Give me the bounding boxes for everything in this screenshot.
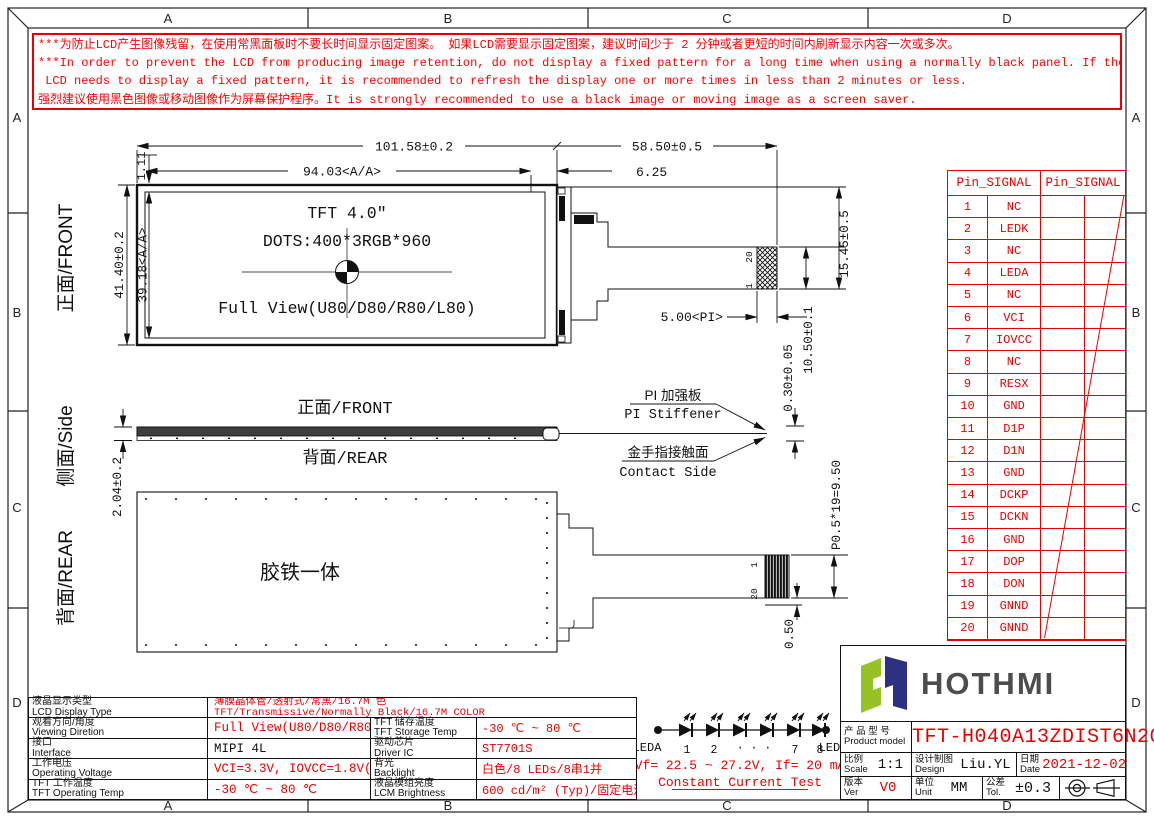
pin-signal: GNND xyxy=(988,596,1041,617)
dim-pitch: P0.5*19=9.50 xyxy=(830,460,844,550)
spec-value-line: TFT/Transmissive/Normally Black/16.7M CO… xyxy=(214,708,630,718)
date-label-en: Date xyxy=(1020,765,1040,775)
leda-terminal xyxy=(654,726,662,734)
gold-finger-hatch xyxy=(757,247,777,289)
brand-name: HOTHMI xyxy=(921,666,1055,702)
spec-label-en: TFT Operating Temp xyxy=(32,789,204,799)
spec-label: 观看方向/角度 Viewing Diretion xyxy=(29,718,208,737)
empty-cell xyxy=(1041,485,1085,506)
dim-stiffener-width: 5.00<PI> xyxy=(661,310,724,325)
empty-cell xyxy=(1085,596,1125,617)
front-section-label: 正面/FRONT xyxy=(56,203,77,312)
pin-number: 14 xyxy=(948,485,988,506)
product-model-label: 产 品 型 号 Product model xyxy=(841,722,912,752)
empty-cell xyxy=(1041,573,1085,594)
scale-design-date-row: 比例Scale 1:1 设计制图Design Liu.YL 日期Date 202… xyxy=(841,752,1125,776)
grid-letter: D xyxy=(1002,798,1011,813)
empty-cell xyxy=(1041,285,1085,306)
led-test-text: Constant Current Test xyxy=(658,775,822,790)
title-block: HOTHMI 产 品 型 号 Product model TFT-H040A13… xyxy=(840,645,1126,800)
image-retention-warning: ***为防止LCD产生图像残留，在使用常黑面板时不要长时间显示固定图案。 如果L… xyxy=(32,33,1122,110)
pin-signal: IOVCC xyxy=(988,329,1041,350)
pin-number: 6 xyxy=(948,307,988,328)
pin-number: 8 xyxy=(948,351,988,372)
pin-signal: GNND xyxy=(988,618,1041,639)
empty-cell xyxy=(1085,440,1125,461)
fpc-tail-rear xyxy=(557,514,802,641)
pin-row: 10GND xyxy=(948,396,1125,418)
empty-cell xyxy=(1085,551,1125,572)
empty-cell xyxy=(1085,218,1125,239)
empty-cell xyxy=(1085,329,1125,350)
pin-number: 3 xyxy=(948,240,988,261)
pin-signal: D1N xyxy=(988,440,1041,461)
pin-signal: NC xyxy=(988,196,1041,217)
view-section-labels: 正面/FRONT 侧面/Side 背面/REAR xyxy=(55,203,77,626)
empty-cell xyxy=(1041,374,1085,395)
date-cell: 日期Date 2021-12-02 xyxy=(1017,753,1125,776)
empty-cell xyxy=(1041,462,1085,483)
grid-letter: A xyxy=(164,798,173,813)
empty-cell xyxy=(1041,529,1085,550)
pin-row: 5NC xyxy=(948,285,1125,307)
design-cell: 设计制图Design Liu.YL xyxy=(912,753,1017,776)
spec-value: MIPI 4L xyxy=(208,739,371,758)
empty-cell xyxy=(1085,196,1125,217)
led-number: · · · xyxy=(737,742,772,755)
pin-signal: NC xyxy=(988,285,1041,306)
grid-letter: D xyxy=(12,695,21,710)
spec-row: TFT 工作温度 TFT Operating Temp -30 ℃ ~ 80 ℃… xyxy=(29,780,636,799)
empty-cell xyxy=(1041,440,1085,461)
dim-width: 101.58±0.2 xyxy=(375,140,453,155)
led-symbols xyxy=(679,713,829,737)
spec-label: 接口 Interface xyxy=(29,739,208,758)
led-anode-label: LEDA xyxy=(633,741,663,755)
first-angle-projection-icon xyxy=(1064,777,1122,799)
grid-letter: A xyxy=(164,11,173,26)
center-target-icon xyxy=(336,261,359,284)
pin-signal: GND xyxy=(988,529,1041,550)
rear-gold-fingers xyxy=(765,555,789,598)
design-value: Liu.YL xyxy=(955,757,1016,773)
pin-table-header: Pin_SIGNAL Pin_SIGNAL xyxy=(948,171,1125,196)
projection-symbol-cell xyxy=(1060,777,1125,799)
empty-cell xyxy=(1041,551,1085,572)
dim-aa-width: 94.03<A/A> xyxy=(303,165,381,180)
side-profile-bar xyxy=(137,427,557,436)
spec-label: 背光 Backlight xyxy=(371,759,477,778)
pin-signal: NC xyxy=(988,351,1041,372)
unit-label-en: Unit xyxy=(915,788,934,798)
grid-letter: B xyxy=(1132,305,1141,320)
tolerance-cell: 公差Tol. ±0.3 xyxy=(983,777,1060,799)
empty-cell xyxy=(1041,618,1085,639)
rear-section-label: 背面/REAR xyxy=(55,530,77,626)
spec-value: VCI=3.3V, IOVCC=1.8V(Typ) xyxy=(208,759,371,778)
spec-label-cn: 驱动芯片 xyxy=(374,738,473,748)
rear-outline xyxy=(137,492,557,652)
pin-row: 9RESX xyxy=(948,374,1125,396)
spec-label: TFT 工作温度 TFT Operating Temp xyxy=(29,780,208,799)
grid-letter: D xyxy=(1002,11,1011,26)
rear-view: 胶铁一体 1 20 P0.5*19=9.50 0.50 xyxy=(137,460,848,652)
panel-dots-text: DOTS:400*3RGB*960 xyxy=(263,232,431,251)
warning-line: 强烈建议使用黑色图像或移动图像作为屏幕保护程序。It is strongly r… xyxy=(38,91,1116,109)
pin-number: 4 xyxy=(948,263,988,284)
empty-cell xyxy=(1041,240,1085,261)
fpc-tail-front xyxy=(571,213,777,320)
dim-thickness: 2.04±0.2 xyxy=(111,457,125,517)
panel-fullview-text: Full View(U80/D80/R80/L80) xyxy=(218,299,475,318)
empty-cell xyxy=(1085,396,1125,417)
spec-label-en: Viewing Diretion xyxy=(32,728,204,738)
ver-unit-tol-row: 版本Ver V0 单位Unit MM 公差Tol. ±0.3 xyxy=(841,776,1125,799)
date-value: 2021-12-02 xyxy=(1042,757,1126,773)
scale-label-en: Scale xyxy=(844,765,868,775)
pin-number: 10 xyxy=(948,396,988,417)
pin-number: 2 xyxy=(948,218,988,239)
pin-number: 17 xyxy=(948,551,988,572)
led-vf-text: Vf= 22.5 ~ 27.2V, If= 20 mA xyxy=(635,758,846,773)
empty-cell xyxy=(1041,218,1085,239)
pin-row: 19GNND xyxy=(948,596,1125,618)
grid-letter: B xyxy=(444,11,453,26)
empty-cell xyxy=(1085,240,1125,261)
empty-cell xyxy=(1041,507,1085,528)
empty-cell xyxy=(1085,529,1125,550)
scale-value: 1:1 xyxy=(870,757,911,773)
ver-value: V0 xyxy=(865,780,911,796)
tol-value: ±0.3 xyxy=(1007,780,1059,797)
grid-letter: C xyxy=(12,500,21,515)
side-rear-label: 背面/REAR xyxy=(302,448,387,469)
pin-row: 7IOVCC xyxy=(948,329,1125,351)
logo-row: HOTHMI xyxy=(841,646,1125,721)
empty-cell xyxy=(1085,462,1125,483)
pin-number: 9 xyxy=(948,374,988,395)
grid-letter: A xyxy=(1132,110,1141,125)
scale-cell: 比例Scale 1:1 xyxy=(841,753,912,776)
pin-signal: NC xyxy=(988,240,1041,261)
tol-label-en: Tol. xyxy=(986,788,1005,798)
dim-tail-h1: 15.45±0.5 xyxy=(838,210,852,278)
pin-row: 20GNND xyxy=(948,618,1125,640)
pin-row: 4LEDA xyxy=(948,263,1125,285)
pin-signal: VCI xyxy=(988,307,1041,328)
empty-cell xyxy=(1041,263,1085,284)
pin-number: 20 xyxy=(948,618,988,639)
led-numbers: 1 2 · · · 7 8 xyxy=(684,742,824,757)
spec-value: ST7701S xyxy=(477,739,636,758)
pin-number: 1 xyxy=(948,196,988,217)
grid-letter: C xyxy=(722,11,731,26)
rear-body-text: 胶铁一体 xyxy=(260,561,340,584)
pin-row: 18DON xyxy=(948,573,1125,595)
led-number: 8 xyxy=(817,744,824,757)
dim-ledge: 6.25 xyxy=(636,165,667,180)
dim-top-margin: 1.11 xyxy=(135,152,149,181)
contact-label-en: Contact Side xyxy=(619,466,716,481)
side-view: 正面/FRONT 背面/REAR PI 加强板 PI Stiffener 金手指… xyxy=(111,344,804,517)
spec-table: 液晶显示类型 LCD Display Type 薄膜晶体管/透射式/常黑/16.… xyxy=(28,697,637,800)
empty-cell xyxy=(1085,351,1125,372)
dim-height: 41.40±0.2 xyxy=(113,231,127,299)
spec-label-en: LCM Brightness xyxy=(374,789,473,799)
pin-number: 16 xyxy=(948,529,988,550)
spec-value: -30 ℃ ~ 80 ℃ xyxy=(477,718,636,737)
empty-cell xyxy=(1085,618,1125,639)
pin-number: 12 xyxy=(948,440,988,461)
engineering-drawing-page: { "colors": { "red": "#e80000", "line": … xyxy=(0,0,1154,817)
dim-aa-height: 39.18<A/A> xyxy=(137,227,151,302)
empty-cell xyxy=(1085,263,1125,284)
unit-value: MM xyxy=(936,780,982,796)
empty-cell xyxy=(1085,285,1125,306)
grid-letter: B xyxy=(13,305,22,320)
pin-row: 1NC xyxy=(948,196,1125,218)
pin-row: 12D1N xyxy=(948,440,1125,462)
grid-letter: A xyxy=(13,110,22,125)
pin-number: 18 xyxy=(948,573,988,594)
pin-row: 3NC xyxy=(948,240,1125,262)
pin-number: 13 xyxy=(948,462,988,483)
spec-value: 600 cd/m² (Typ)/固定电流测试 xyxy=(477,780,636,799)
pin-signal: DCKN xyxy=(988,507,1041,528)
pin-signal: DON xyxy=(988,573,1041,594)
empty-cell xyxy=(1041,351,1085,372)
spec-row: 液晶显示类型 LCD Display Type 薄膜晶体管/透射式/常黑/16.… xyxy=(29,698,636,718)
pin-signal: GND xyxy=(988,462,1041,483)
contact-label-cn: 金手指接触面 xyxy=(628,444,709,460)
pin-signal: RESX xyxy=(988,374,1041,395)
empty-cell xyxy=(1085,573,1125,594)
panel-size-text: TFT 4.0″ xyxy=(307,204,386,223)
led-number: 7 xyxy=(792,744,799,757)
spec-value: 薄膜晶体管/透射式/常黑/16.7M 色 TFT/Transmissive/No… xyxy=(208,698,636,717)
warning-line: LCD needs to display a fixed pattern, it… xyxy=(38,72,1116,90)
grid-letter: D xyxy=(1131,695,1140,710)
pin-signal: LEDA xyxy=(988,263,1041,284)
spec-label: TFT 储存温度 TFT Storage Temp xyxy=(371,718,477,737)
led-circuit: LEDA LEDK 1 2 · · · 7 8 Vf= 22.5 ~ 27.2V… xyxy=(633,713,849,790)
pin-row: 6VCI xyxy=(948,307,1125,329)
design-label-en: Design xyxy=(915,765,953,775)
ver-label-en: Ver xyxy=(844,788,863,798)
pin-row: 11D1P xyxy=(948,418,1125,440)
pin-row: 17DOP xyxy=(948,551,1125,573)
dim-tail-h2: 10.50±0.1 xyxy=(802,306,816,374)
pin-row: 13GND xyxy=(948,462,1125,484)
side-front-label: 正面/FRONT xyxy=(297,399,392,419)
pin-row: 16GND xyxy=(948,529,1125,551)
dim-offset: 0.50 xyxy=(783,619,797,649)
empty-cell xyxy=(1041,196,1085,217)
spec-row: 观看方向/角度 Viewing Diretion Full View(U80/D… xyxy=(29,718,636,738)
empty-cell xyxy=(1085,307,1125,328)
version-cell: 版本Ver V0 xyxy=(841,777,912,799)
empty-cell xyxy=(1041,307,1085,328)
empty-cell xyxy=(1085,418,1125,439)
empty-cell xyxy=(1041,396,1085,417)
grid-letter: C xyxy=(722,798,731,813)
warning-line: ***In order to prevent the LCD from prod… xyxy=(38,54,1116,72)
rear-pin1-label: 1 xyxy=(749,562,760,568)
hothmi-logo-icon xyxy=(853,654,915,714)
unit-cell: 单位Unit MM xyxy=(912,777,983,799)
pin-signal: GND xyxy=(988,396,1041,417)
pin-signal: D1P xyxy=(988,418,1041,439)
pin-signal: LEDK xyxy=(988,218,1041,239)
pin-number: 19 xyxy=(948,596,988,617)
product-model-row: 产 品 型 号 Product model TFT-H040A13ZDIST6N… xyxy=(841,721,1125,752)
warning-line: ***为防止LCD产生图像残留，在使用常黑面板时不要长时间显示固定图案。 如果L… xyxy=(38,36,1116,54)
pin-number: 15 xyxy=(948,507,988,528)
led-number: 1 xyxy=(684,744,691,757)
product-model-value: TFT-H040A13ZDIST6N20 xyxy=(912,726,1154,749)
pin-row: 8NC xyxy=(948,351,1125,373)
spec-row: 工作电压 Operating Voltage VCI=3.3V, IOVCC=1… xyxy=(29,759,636,779)
pin-signal: DOP xyxy=(988,551,1041,572)
spec-row: 接口 Interface MIPI 4L 驱动芯片 Driver IC ST77… xyxy=(29,739,636,759)
led-number: 2 xyxy=(711,744,718,757)
pin-signal-table: Pin_SIGNAL Pin_SIGNAL 1NC 2LEDK 3NC 4LED… xyxy=(947,170,1126,641)
spec-value: 白色/8 LEDs/8串1并 xyxy=(477,759,636,778)
dim-stiffener-thickness: 0.30±0.05 xyxy=(782,344,796,412)
grid-letter: C xyxy=(1131,500,1140,515)
tail-pin1-label: 1 xyxy=(744,283,755,289)
stiffener-label-en: PI Stiffener xyxy=(624,408,721,423)
spec-label: 工作电压 Operating Voltage xyxy=(29,759,208,778)
spec-label: 驱动芯片 Driver IC xyxy=(371,739,477,758)
side-tail-root xyxy=(543,428,559,440)
empty-cell xyxy=(1085,507,1125,528)
empty-cell xyxy=(1085,485,1125,506)
stiffener-label-cn: PI 加强板 xyxy=(644,388,702,403)
pin-table-header-cell: Pin_SIGNAL xyxy=(1041,171,1125,195)
pin-number: 7 xyxy=(948,329,988,350)
product-label-en: Product model xyxy=(844,737,905,747)
spec-label-cn: 接口 xyxy=(32,738,204,748)
side-section-label: 侧面/Side xyxy=(55,405,77,486)
pin-table-header-cell: Pin_SIGNAL xyxy=(948,171,1041,195)
pin-number: 11 xyxy=(948,418,988,439)
pin-number: 5 xyxy=(948,285,988,306)
spec-label: 液晶模组亮度 LCM Brightness xyxy=(371,780,477,799)
empty-cell xyxy=(1041,596,1085,617)
pin-signal: DCKP xyxy=(988,485,1041,506)
pin-row: 2LEDK xyxy=(948,218,1125,240)
empty-cell xyxy=(1085,374,1125,395)
rear-pin20-label: 20 xyxy=(749,588,760,600)
empty-cell xyxy=(1041,418,1085,439)
spec-value: Full View(U80/D80/R80/L80) xyxy=(208,718,371,737)
tail-pin20-label: 20 xyxy=(744,251,755,263)
empty-cell xyxy=(1041,329,1085,350)
dim-tail-length: 58.50±0.5 xyxy=(632,140,702,155)
pin-row: 14DCKP xyxy=(948,485,1125,507)
grid-letter: B xyxy=(444,798,453,813)
spec-label: 液晶显示类型 LCD Display Type xyxy=(29,698,208,717)
spec-value: -30 ℃ ~ 80 ℃ xyxy=(208,780,371,799)
pin-row: 15DCKN xyxy=(948,507,1125,529)
